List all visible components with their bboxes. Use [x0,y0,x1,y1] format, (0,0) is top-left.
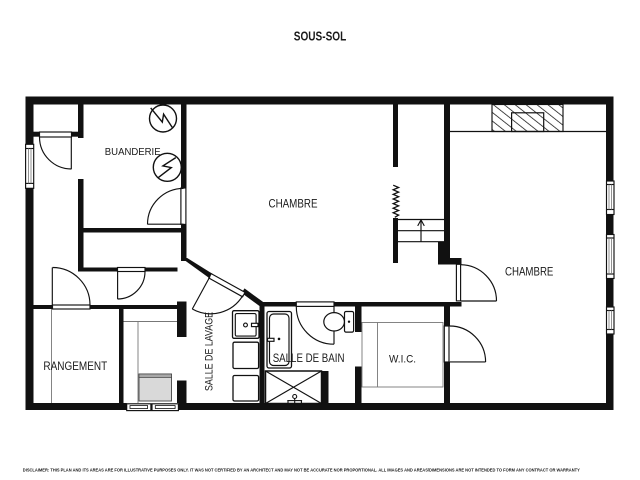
svg-text:W.I.C.: W.I.C. [389,354,416,366]
svg-text:CHAMBRE: CHAMBRE [505,265,553,279]
svg-text:RANGEMENT: RANGEMENT [43,359,107,373]
svg-text:BUANDERIE: BUANDERIE [105,147,161,158]
svg-text:DISCLAIMER: THIS PLAN AND ITS: DISCLAIMER: THIS PLAN AND ITS AREAS ARE … [23,468,580,473]
svg-text:SOUS-SOL: SOUS-SOL [294,29,347,43]
svg-text:SALLE DE BAIN: SALLE DE BAIN [273,351,345,365]
svg-text:SALLE DE LAVAGE: SALLE DE LAVAGE [204,312,216,391]
svg-text:CHAMBRE: CHAMBRE [269,196,318,210]
